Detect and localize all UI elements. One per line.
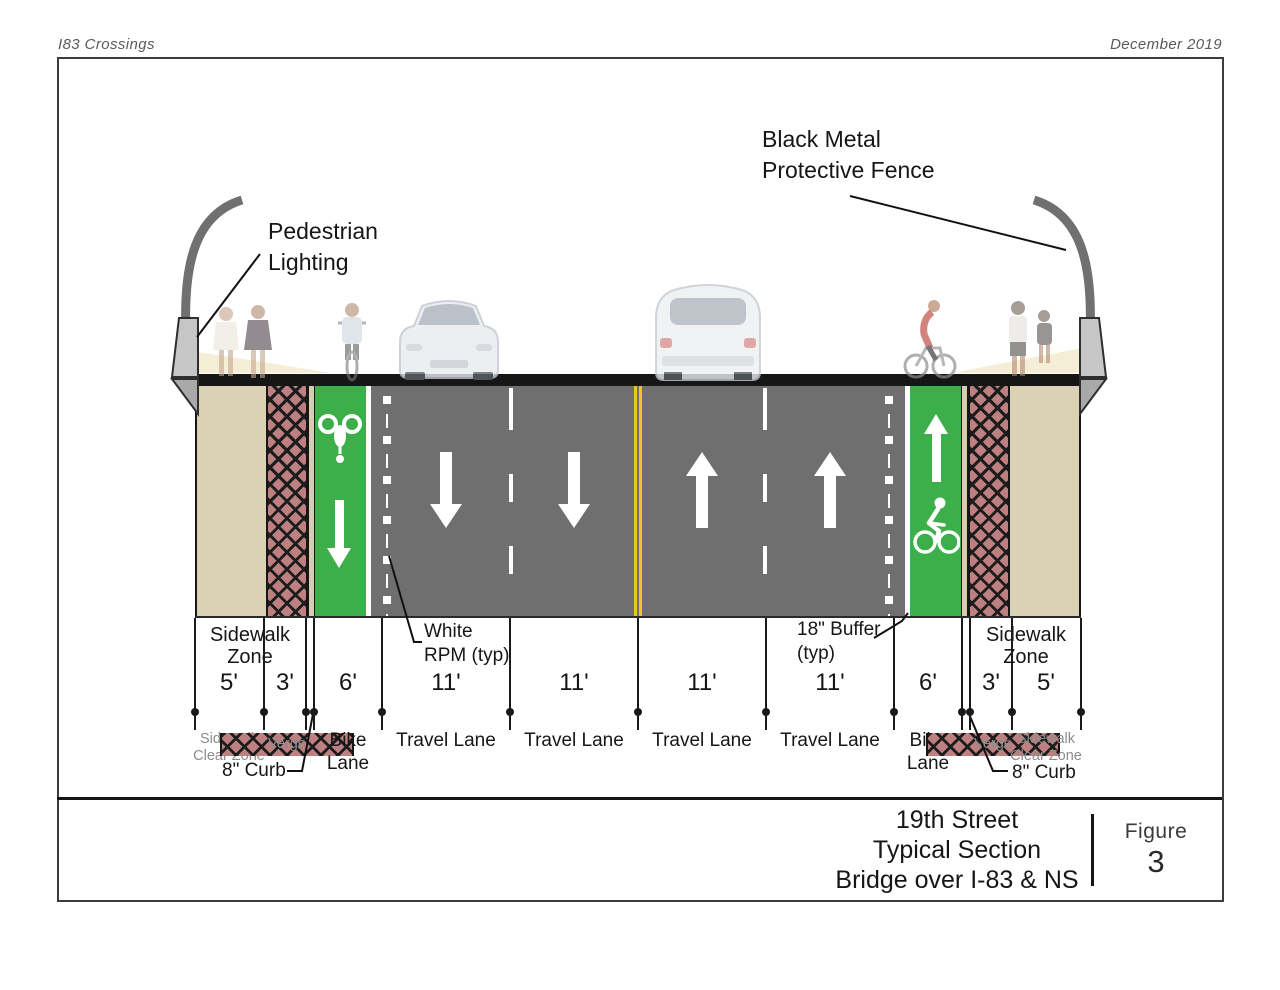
lane-arrow-down-1 bbox=[430, 452, 462, 528]
label-travel-lane-1: Travel Lane bbox=[381, 729, 511, 752]
pedestrian-lighting-label: Pedestrian Lighting bbox=[268, 216, 378, 278]
curb-note-right: 8" Curb bbox=[1012, 761, 1076, 785]
lane-arrow-up-1 bbox=[686, 452, 718, 528]
bike-arrow-up bbox=[924, 414, 948, 482]
sidewalk-zone-label-right: Sidewalk Zone bbox=[974, 624, 1078, 668]
verge-left bbox=[266, 386, 308, 616]
title-block-rule bbox=[57, 797, 1222, 800]
title-block-divider bbox=[1091, 814, 1094, 886]
buffer-left bbox=[371, 386, 383, 616]
curb-right bbox=[961, 386, 969, 616]
buffer-note: 18" Buffer (typ) bbox=[797, 618, 881, 666]
label-sidewalk-clear-zone-right: Sidewalk Clear Zone bbox=[981, 731, 1111, 765]
label-travel-lane-2: Travel Lane bbox=[509, 729, 639, 752]
label-travel-lane-3: Travel Lane bbox=[637, 729, 767, 752]
figure-number: 3 bbox=[1106, 844, 1206, 880]
dim-5r: 5' bbox=[986, 669, 1106, 697]
curb-left bbox=[308, 386, 316, 616]
dim-11c: 11' bbox=[642, 669, 762, 697]
header-project: I83 Crossings bbox=[58, 36, 155, 53]
bridge-deck bbox=[195, 374, 1081, 386]
double-yellow-center-line bbox=[634, 386, 642, 616]
lane-arrow-up-2 bbox=[814, 452, 846, 528]
rpm-line-left bbox=[383, 386, 391, 616]
figure-label: Figure bbox=[1106, 820, 1206, 844]
buffer-right bbox=[893, 386, 905, 616]
verge-right bbox=[968, 386, 1010, 616]
bike-arrow-down bbox=[327, 500, 351, 568]
protective-fence-label: Black Metal Protective Fence bbox=[762, 124, 935, 186]
lane-arrow-down-2 bbox=[558, 452, 590, 528]
dim-11b: 11' bbox=[514, 669, 634, 697]
sidewalk-zone-label-left: Sidewalk Zone bbox=[198, 624, 302, 668]
drawing-title: 19th Street Typical Section Bridge over … bbox=[830, 805, 1084, 895]
white-rpm-note: White RPM (typ) bbox=[424, 620, 510, 668]
curb-note-left: 8" Curb bbox=[222, 759, 286, 783]
sidewalk-left bbox=[195, 386, 266, 616]
rpm-line-right bbox=[885, 386, 893, 616]
bridge-cross-section bbox=[195, 374, 1081, 618]
header-date: December 2019 bbox=[1110, 36, 1222, 53]
sidewalk-right bbox=[1010, 386, 1081, 616]
figure-sheet: I83 Crossings December 2019 Pedestrian L… bbox=[0, 0, 1280, 990]
dim-11a: 11' bbox=[386, 669, 506, 697]
